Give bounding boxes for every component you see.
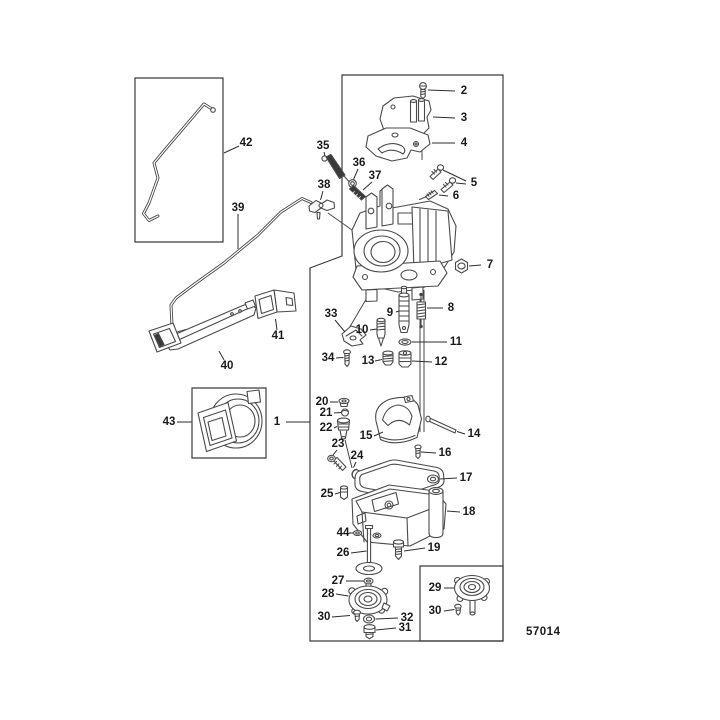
part-5-screws — [430, 165, 456, 193]
part-15-float — [376, 396, 422, 443]
callout-number: 24 — [351, 450, 364, 462]
callout-number: 3 — [461, 112, 467, 124]
leader-line — [335, 320, 345, 332]
leader-line — [376, 618, 399, 619]
link-38-to-body — [328, 213, 352, 230]
callout-number: 30 — [318, 611, 331, 623]
callout-38: 38 — [318, 179, 331, 200]
leader-line — [332, 616, 350, 618]
leader-line — [469, 265, 481, 266]
callout-6: 6 — [439, 190, 459, 202]
callout-21: 21 — [320, 407, 341, 419]
callout-30: 30 — [429, 605, 455, 617]
callout-28: 28 — [322, 588, 349, 600]
callout-2: 2 — [428, 85, 467, 97]
callout-number: 40 — [221, 360, 234, 372]
callout-13: 13 — [362, 355, 382, 367]
callout-number: 2 — [461, 85, 467, 97]
callout-16: 16 — [421, 447, 451, 459]
callout-22: 22 — [320, 422, 337, 434]
callout-number: 39 — [232, 202, 245, 214]
leader-line — [335, 493, 340, 495]
callout-number: 44 — [337, 527, 350, 539]
callout-3: 3 — [433, 112, 467, 124]
callout-number: 41 — [272, 330, 285, 342]
callout-number: 37 — [369, 170, 382, 182]
callout-39: 39 — [232, 202, 245, 249]
callout-42: 42 — [224, 137, 252, 153]
part-43-cap — [198, 390, 262, 452]
callout-number: 38 — [318, 179, 331, 191]
part-37-spring — [350, 186, 366, 201]
callout-32: 32 — [376, 612, 414, 624]
callout-number: 22 — [320, 422, 333, 434]
callout-number: 42 — [240, 137, 253, 149]
callout-26: 26 — [337, 547, 367, 559]
callout-number: 9 — [387, 307, 393, 319]
part-32-washer — [364, 615, 375, 623]
callout-number: 36 — [353, 157, 366, 169]
leader-line — [354, 169, 359, 180]
callout-36: 36 — [353, 157, 366, 180]
leader-line — [370, 329, 377, 330]
leader-line — [354, 462, 357, 468]
part-2-screw — [420, 83, 427, 99]
callout-10: 10 — [356, 324, 377, 336]
part-30-screw-alt — [455, 604, 461, 615]
leader-line — [457, 432, 465, 435]
callout-number: 15 — [360, 430, 373, 442]
callout-number: 6 — [453, 190, 459, 202]
callout-23: 23 — [332, 438, 345, 455]
leader-line — [376, 628, 396, 630]
callout-44: 44 — [337, 527, 353, 539]
part-41-sleeve — [255, 290, 296, 319]
part-44-washer — [354, 531, 362, 536]
leader-line — [333, 450, 337, 455]
callout-number: 21 — [320, 407, 333, 419]
exploded-parts-diagram: 1234567891011121314151617181920212223242… — [0, 0, 720, 720]
part-31-bolt — [364, 625, 375, 639]
callout-7: 7 — [469, 259, 493, 271]
diagram-canvas: 1234567891011121314151617181920212223242… — [0, 0, 720, 720]
callout-8: 8 — [427, 302, 455, 314]
callout-number: 5 — [471, 177, 478, 189]
leader-line — [363, 182, 372, 190]
callout-number: 14 — [468, 428, 481, 440]
callout-12: 12 — [412, 356, 447, 368]
leader-line — [321, 191, 324, 200]
part-25-pin — [341, 486, 348, 500]
leader-line — [444, 610, 455, 612]
leader-line — [439, 195, 448, 196]
callout-number: 19 — [428, 542, 441, 554]
callout-35: 35 — [317, 140, 330, 156]
part-10-needle-jet — [377, 318, 385, 346]
callout-40: 40 — [219, 351, 233, 372]
part-11-washer — [399, 339, 411, 345]
callout-33: 33 — [325, 308, 345, 332]
leader-line — [421, 452, 436, 453]
leader-line — [447, 511, 460, 512]
callout-number: 32 — [401, 612, 414, 624]
leader-line — [404, 548, 425, 551]
part-7-nut — [456, 259, 468, 273]
callout-29: 29 — [429, 582, 454, 594]
part-12-jet — [399, 351, 411, 367]
callout-number: 25 — [321, 488, 334, 500]
part-20-cap — [339, 398, 349, 406]
callout-43: 43 — [163, 416, 192, 428]
callout-34: 34 — [322, 352, 344, 364]
leader-line — [412, 361, 432, 362]
callout-37: 37 — [363, 170, 381, 190]
callout-4: 4 — [432, 137, 468, 149]
callout-number: 17 — [460, 472, 473, 484]
part-14-hinge-pin — [426, 416, 456, 433]
callout-number: 10 — [356, 324, 369, 336]
callout-number: 8 — [448, 302, 455, 314]
callout-24: 24 — [351, 450, 364, 468]
callout-number: 11 — [450, 336, 463, 348]
part-9-main-nozzle — [399, 286, 409, 332]
leader-line — [219, 351, 224, 360]
leader-line — [351, 551, 367, 553]
part-34-screw — [344, 350, 351, 367]
callout-number: 23 — [332, 438, 345, 450]
callout-number: 43 — [163, 416, 176, 428]
leader-line — [334, 427, 337, 429]
callout-number: 7 — [487, 259, 493, 271]
part-19-screw — [394, 540, 404, 560]
callout-number: 35 — [317, 140, 330, 152]
part-4-gasket-plate — [366, 128, 430, 161]
callout-number: 1 — [274, 416, 281, 428]
callout-25: 25 — [321, 488, 340, 500]
part-42-choke-rod — [144, 104, 216, 221]
callout-9: 9 — [387, 307, 399, 319]
part-35-idle-screw — [322, 155, 349, 182]
part-30-screw — [354, 610, 361, 621]
callout-number: 34 — [322, 352, 335, 364]
callout-number: 30 — [429, 605, 442, 617]
leader-line — [334, 413, 341, 414]
leader-line — [276, 319, 278, 330]
callout-17: 17 — [440, 472, 472, 484]
leader-line — [336, 358, 344, 359]
part-16-screw — [415, 445, 421, 459]
leader-line — [428, 90, 455, 91]
part-6-fitting — [420, 191, 438, 200]
leader-line — [456, 183, 466, 184]
leader-line — [224, 146, 239, 153]
figure-code: 57014 — [526, 626, 560, 638]
part-13-jet — [383, 351, 393, 365]
callout-18: 18 — [447, 506, 476, 518]
callout-number: 33 — [325, 308, 338, 320]
callout-27: 27 — [332, 575, 364, 587]
callout-1: 1 — [274, 416, 310, 428]
callout-41: 41 — [272, 319, 285, 342]
callout-number: 4 — [461, 137, 468, 149]
part-22-needle-seat — [338, 418, 350, 439]
leader-line — [336, 594, 349, 596]
callout-14: 14 — [457, 428, 481, 440]
part-23-plug — [328, 455, 346, 470]
callout-number: 18 — [463, 506, 476, 518]
callout-number: 13 — [362, 355, 375, 367]
part-21-ball — [342, 409, 349, 416]
callout-number: 16 — [439, 447, 452, 459]
part-38-link-lever — [309, 200, 335, 219]
callout-number: 12 — [435, 356, 448, 368]
carburetor-body — [352, 185, 456, 302]
callout-number: 29 — [429, 582, 442, 594]
part-18-float-bowl — [352, 485, 446, 546]
callout-number: 27 — [332, 575, 345, 587]
inset-box-29-30 — [420, 566, 503, 641]
callout-30: 30 — [318, 611, 350, 623]
callout-number: 26 — [337, 547, 350, 559]
leader-line — [375, 360, 382, 362]
leader-line — [433, 117, 455, 118]
part-40-link-bar — [149, 300, 256, 352]
callout-number: 28 — [322, 588, 335, 600]
